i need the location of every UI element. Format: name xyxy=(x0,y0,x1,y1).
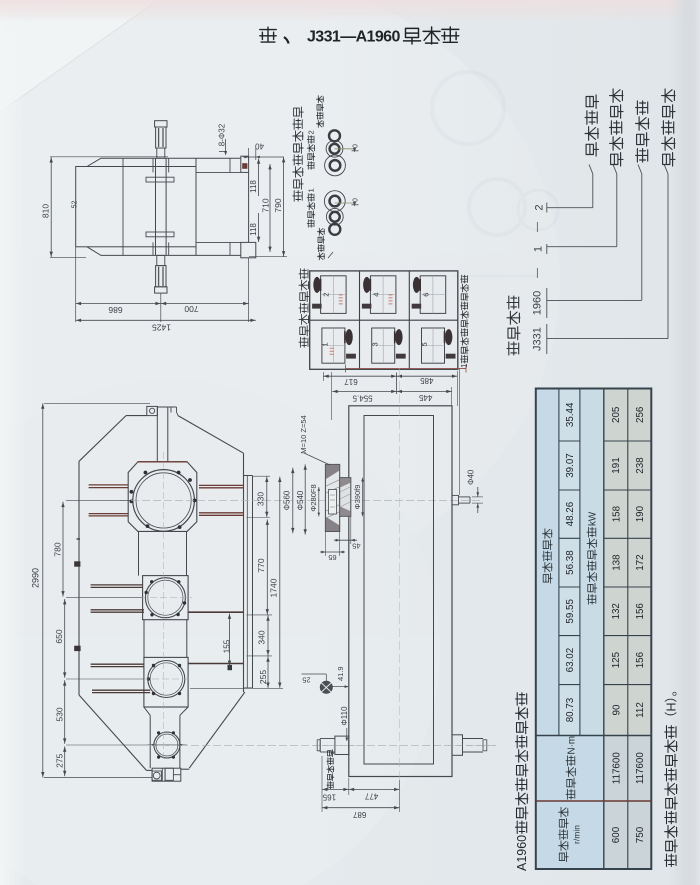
svg-text:650: 650 xyxy=(54,629,64,643)
svg-text:A1960: A1960 xyxy=(515,835,529,871)
svg-text:155: 155 xyxy=(223,639,232,653)
svg-text:238: 238 xyxy=(635,457,646,474)
svg-text:158: 158 xyxy=(611,505,622,522)
svg-text:132: 132 xyxy=(611,603,622,619)
svg-text:Φ110: Φ110 xyxy=(340,706,349,726)
svg-text:485: 485 xyxy=(420,376,434,385)
svg-text:80.73: 80.73 xyxy=(565,697,576,722)
svg-text:48.26: 48.26 xyxy=(565,501,576,526)
svg-text:—: — xyxy=(532,268,543,278)
svg-text:256: 256 xyxy=(635,406,646,423)
svg-text:0: 0 xyxy=(352,198,359,202)
svg-text:1: 1 xyxy=(307,188,316,192)
svg-text:750: 750 xyxy=(635,826,646,843)
svg-text:710: 710 xyxy=(261,198,271,212)
svg-text:59.55: 59.55 xyxy=(565,598,576,623)
svg-text:J331—A1960: J331—A1960 xyxy=(307,28,400,45)
svg-text:5: 5 xyxy=(420,342,429,346)
svg-text:156: 156 xyxy=(635,651,646,668)
svg-text:25: 25 xyxy=(302,676,310,685)
svg-text:65: 65 xyxy=(328,553,336,562)
svg-text:2: 2 xyxy=(307,130,316,134)
svg-text:52: 52 xyxy=(71,201,78,209)
svg-text:617: 617 xyxy=(344,377,358,386)
svg-text:4: 4 xyxy=(372,293,381,297)
svg-text:6: 6 xyxy=(421,293,430,297)
svg-text:N·m: N·m xyxy=(566,736,577,755)
svg-text:191: 191 xyxy=(611,457,622,473)
svg-text:600: 600 xyxy=(611,826,622,843)
svg-text:790: 790 xyxy=(273,198,283,212)
svg-text:41.9: 41.9 xyxy=(336,666,345,681)
svg-text:（H）。: （H）。 xyxy=(664,684,678,724)
svg-text:Φ280F8: Φ280F8 xyxy=(309,484,318,511)
svg-text:1: 1 xyxy=(532,246,544,252)
svg-text:205: 205 xyxy=(611,406,622,423)
svg-text:1740: 1740 xyxy=(268,578,278,597)
svg-text:Φ390f9: Φ390f9 xyxy=(353,485,362,510)
svg-text:Φ40: Φ40 xyxy=(467,469,476,485)
svg-text:138: 138 xyxy=(611,554,622,571)
svg-text:340: 340 xyxy=(257,630,267,644)
svg-text:117600: 117600 xyxy=(611,752,622,785)
svg-text:2: 2 xyxy=(533,204,545,210)
svg-text:165: 165 xyxy=(322,793,336,802)
svg-text:1960: 1960 xyxy=(531,291,543,315)
svg-text:190: 190 xyxy=(635,505,646,522)
svg-text:2990: 2990 xyxy=(31,568,41,588)
svg-text:0: 0 xyxy=(352,144,359,148)
svg-text:118: 118 xyxy=(249,223,258,236)
svg-text:172: 172 xyxy=(635,554,646,570)
svg-text:118: 118 xyxy=(249,180,258,193)
svg-text:156: 156 xyxy=(635,603,646,620)
svg-text:90: 90 xyxy=(611,704,622,715)
svg-text:125: 125 xyxy=(611,651,622,668)
svg-text:56.38: 56.38 xyxy=(565,550,576,575)
svg-text:117600: 117600 xyxy=(635,752,646,785)
svg-text:1: 1 xyxy=(460,364,469,368)
svg-text:686: 686 xyxy=(108,305,122,315)
svg-text:112: 112 xyxy=(635,702,646,718)
svg-text:J331: J331 xyxy=(531,327,543,351)
svg-text:39.07: 39.07 xyxy=(565,453,576,478)
svg-text:M=10 Z=54: M=10 Z=54 xyxy=(299,415,308,453)
svg-text:kW: kW xyxy=(587,511,598,526)
svg-text:700: 700 xyxy=(184,304,198,314)
svg-text:45: 45 xyxy=(352,541,360,550)
svg-text:40: 40 xyxy=(255,142,264,151)
svg-text:2: 2 xyxy=(322,293,331,297)
svg-text:Φ560: Φ560 xyxy=(283,490,292,510)
svg-text:810: 810 xyxy=(40,204,50,218)
svg-text:—: — xyxy=(532,222,543,232)
svg-text:Φ540: Φ540 xyxy=(296,490,305,510)
svg-text:530: 530 xyxy=(55,707,65,721)
svg-text:554.5: 554.5 xyxy=(352,394,373,403)
svg-text:1425: 1425 xyxy=(152,322,171,332)
svg-text:35.44: 35.44 xyxy=(565,402,576,427)
svg-text:445: 445 xyxy=(418,393,432,402)
svg-text:3: 3 xyxy=(370,342,379,346)
svg-text:687: 687 xyxy=(352,810,366,819)
svg-text:1: 1 xyxy=(321,342,330,346)
svg-text:255: 255 xyxy=(258,670,268,684)
svg-text:770: 770 xyxy=(256,558,266,572)
svg-text:330: 330 xyxy=(256,492,266,506)
svg-text:477: 477 xyxy=(364,792,378,801)
svg-text:275: 275 xyxy=(55,753,65,767)
svg-text:r/min: r/min xyxy=(571,825,581,844)
svg-text:780: 780 xyxy=(53,542,63,556)
svg-text:63.02: 63.02 xyxy=(565,648,576,673)
